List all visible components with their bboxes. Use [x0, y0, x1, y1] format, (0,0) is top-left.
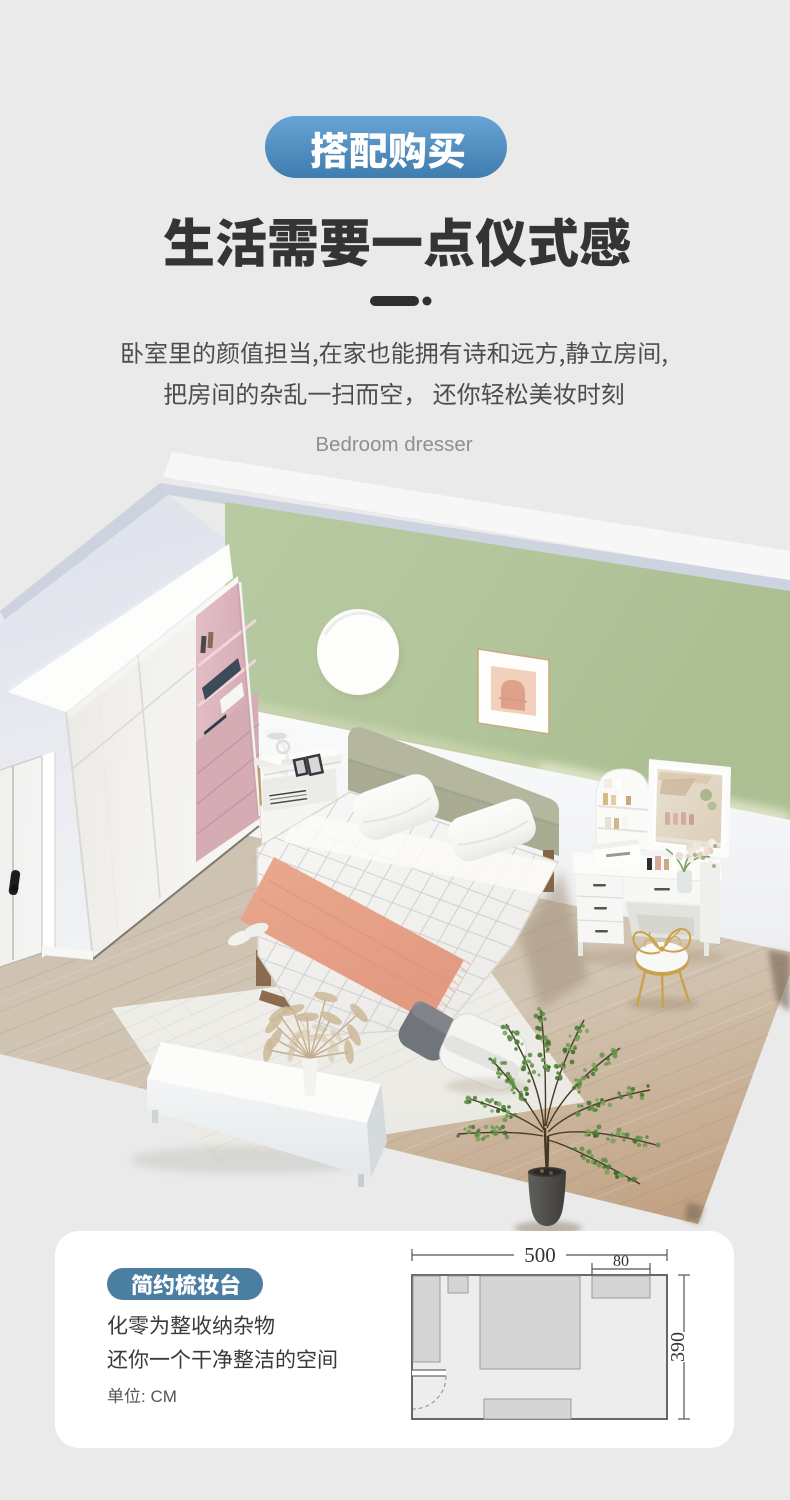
svg-text:Bedroom dresser: Bedroom dresser — [315, 433, 472, 456]
svg-text:80: 80 — [613, 1253, 629, 1270]
svg-text:500: 500 — [524, 1243, 556, 1267]
svg-text:390: 390 — [667, 1332, 689, 1362]
svg-text:: CM: : CM — [141, 1387, 177, 1406]
